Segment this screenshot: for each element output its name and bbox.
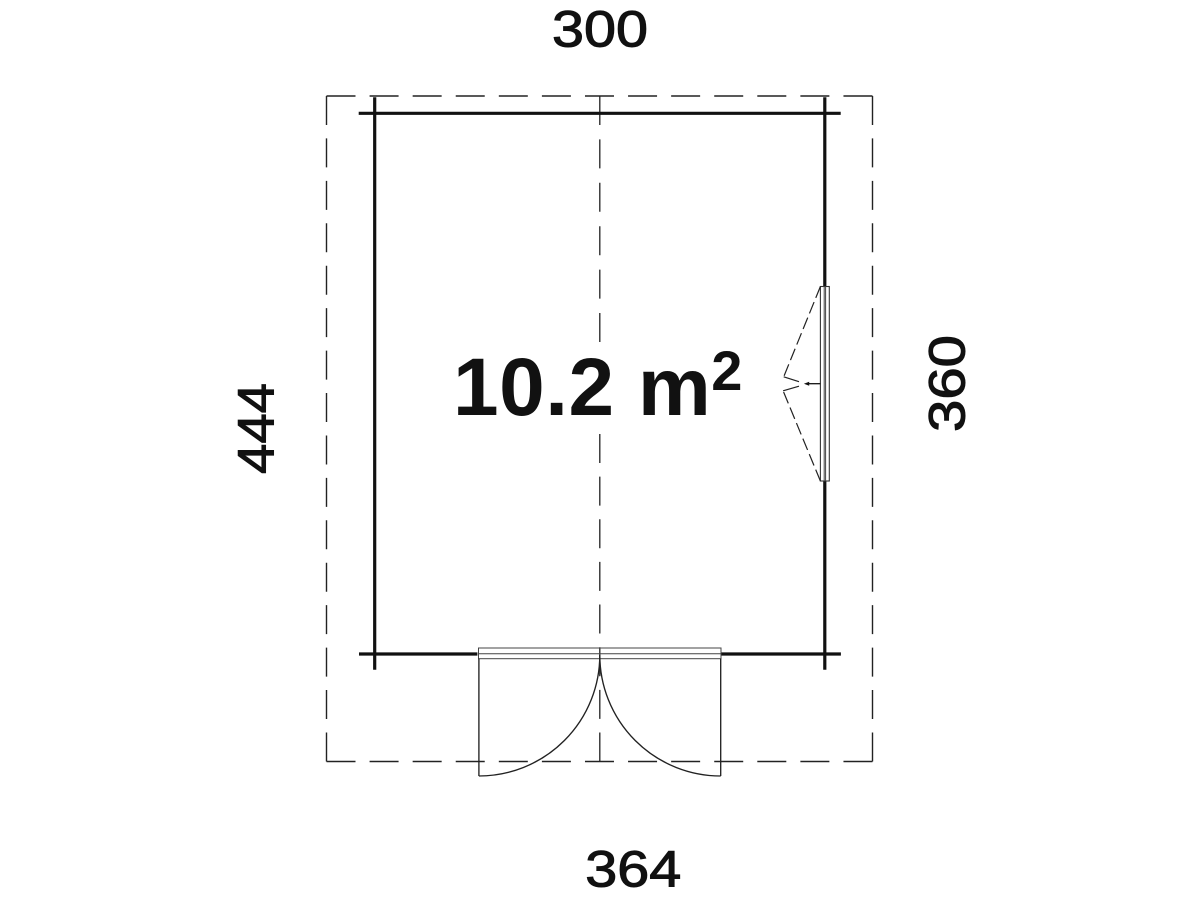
svg-text:364: 364 — [585, 841, 681, 898]
svg-text:10.2 m2: 10.2 m2 — [453, 339, 743, 433]
svg-text:360: 360 — [919, 335, 976, 432]
svg-text:300: 300 — [552, 1, 648, 58]
svg-text:444: 444 — [228, 383, 285, 474]
